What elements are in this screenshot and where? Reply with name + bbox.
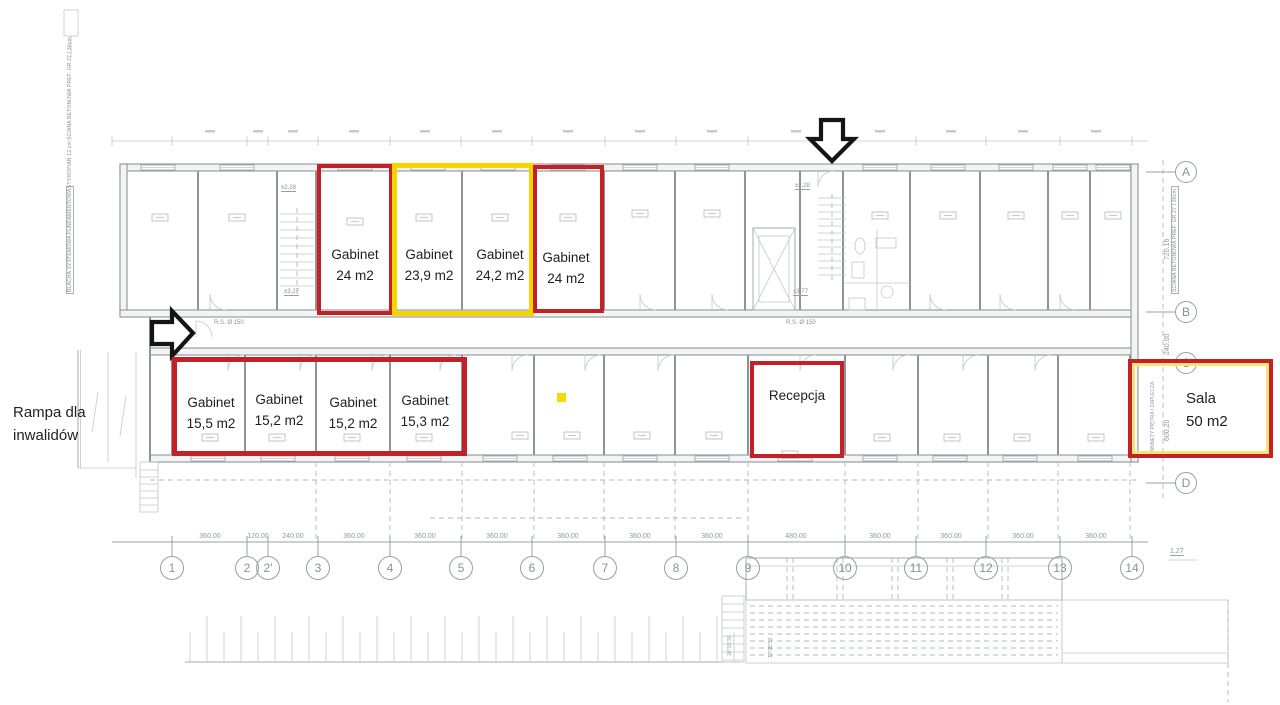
dimension-label: 360.00 [869, 533, 890, 540]
column-bubble: 6 [520, 556, 544, 580]
highlight-box-gabinet-24-left [317, 164, 393, 315]
label-gabinet-152-a: Gabinet 15,2 m2 [255, 389, 304, 431]
column-bubble: 12 [974, 556, 998, 580]
dimension-label: 360.00 [557, 533, 578, 540]
level-mark-d: ±3,77 [793, 289, 808, 296]
column-bubble: 10 [833, 556, 857, 580]
column-bubble: 4 [378, 556, 402, 580]
label-gabinet-242: Gabinet 24,2 m2 [476, 244, 525, 286]
dimension-label: 360.00 [1012, 533, 1033, 540]
dimension-label: 240.00 [282, 533, 303, 540]
highlight-box-gabinet-24-right [533, 165, 604, 313]
column-bubble: 3 [306, 556, 330, 580]
dimension-label: 480.00 [785, 533, 806, 540]
highlight-box-gabinet-239-242 [392, 163, 534, 316]
column-bubble: 9 [736, 556, 760, 580]
terrace-note-2: 36*15*30 [727, 600, 733, 656]
dimension-label: 360.00 [486, 533, 507, 540]
level-mark-a: ±2,28 [281, 185, 296, 192]
floor-plan-screenshot: 122'34567891011121314360.00120.00240.003… [0, 0, 1280, 705]
row-dimension-label: 240.00 [1164, 319, 1171, 355]
column-bubble: 7 [593, 556, 617, 580]
level-mark-b: ±3,27 [284, 289, 299, 296]
level-mark-c: ±2,28 [795, 183, 810, 190]
row-dimension-label: 720.16 [1164, 224, 1171, 260]
highlight-box-recepcja [750, 361, 844, 458]
dimension-label: 360.00 [629, 533, 650, 540]
label-gabinet-24-right: Gabinet 24 m2 [542, 247, 589, 289]
pipe-note-left: R.S. Ø 150 [214, 320, 244, 326]
column-bubble: 2' [256, 556, 280, 580]
column-bubble: 8 [664, 556, 688, 580]
column-bubble: 5 [449, 556, 473, 580]
label-sala: Sala 50 m2 [1186, 387, 1228, 433]
wall-note-left: BLACHA SYSTEMOWA FUNDAMENTOWA STYROPIAN … [66, 186, 74, 294]
column-bubble: 13 [1048, 556, 1072, 580]
dimension-label: 360.00 [940, 533, 961, 540]
column-bubble: 14 [1120, 556, 1144, 580]
row-bubble: A [1175, 161, 1197, 183]
dimension-label: 360.00 [343, 533, 364, 540]
column-bubble: 1 [160, 556, 184, 580]
wall-note-right: ŚCIANA BETONOWA PREF. GR.27 I 36cm [1171, 186, 1179, 294]
row-bubble: B [1175, 301, 1197, 323]
dimension-label: 360.00 [1085, 533, 1106, 540]
label-gabinet-239: Gabinet 23,9 m2 [405, 244, 454, 286]
dimension-label: 120.00 [247, 533, 268, 540]
yellow-square-marker [557, 393, 566, 402]
dimension-label: 360.00 [199, 533, 220, 540]
label-gabinet-153: Gabinet 15,3 m2 [401, 390, 450, 432]
label-gabinet-152-b: Gabinet 15,2 m2 [329, 392, 378, 434]
dimension-label: 360.00 [701, 533, 722, 540]
row-bubble: D [1175, 472, 1197, 494]
label-rampa: Rampa dla inwalidów [13, 401, 86, 447]
pipe-note-center: R.S. Ø 150 [786, 320, 816, 326]
terrace-note-1: 10*15*32 [768, 606, 774, 658]
label-gabinet-155: Gabinet 15,5 m2 [187, 392, 236, 434]
dimension-label: 360.00 [414, 533, 435, 540]
column-bubble: 11 [904, 556, 928, 580]
level-mark-127: 1,27 [1170, 548, 1184, 556]
grid-labels-layer: 122'34567891011121314360.00120.00240.003… [0, 0, 1280, 705]
label-gabinet-24-left: Gabinet 24 m2 [331, 244, 378, 286]
label-recepcja: Recepcja [769, 385, 825, 406]
